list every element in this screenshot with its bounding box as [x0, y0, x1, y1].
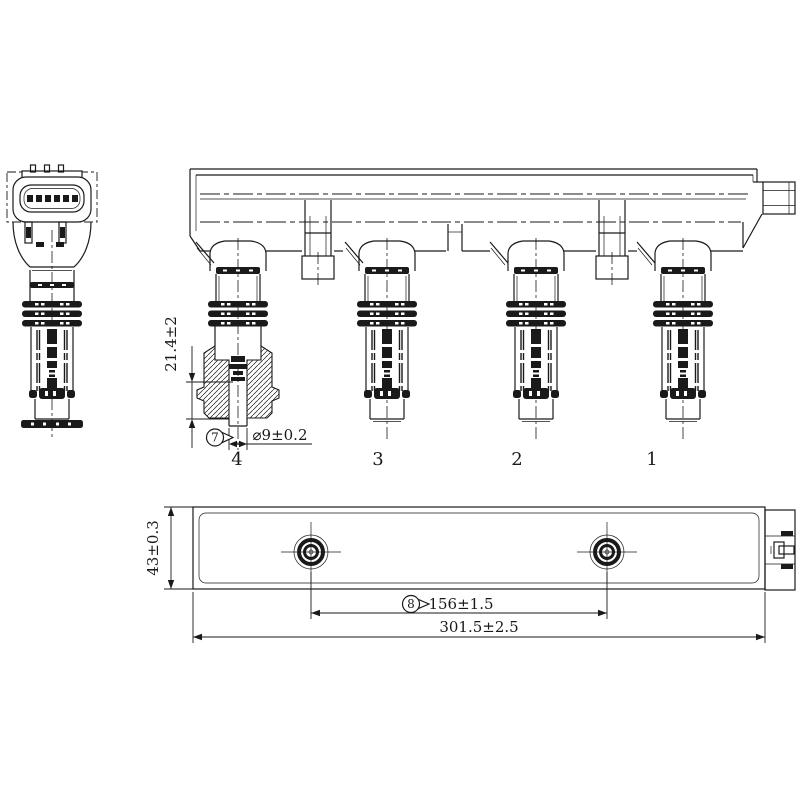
rail-connector-stub [743, 169, 795, 248]
dim-tip-diameter-text: ⌀9±0.2 [253, 426, 308, 444]
coil-number-2: 2 [511, 449, 522, 470]
coil-number-4: 4 [231, 449, 242, 470]
ignition-coil-rail-drawing: 21.4±2 7 ⌀9±0.2 4 3 2 1 [0, 0, 800, 800]
bottom-view-connector [765, 510, 795, 590]
coil-number-1: 1 [646, 449, 657, 470]
balloon-7-number: 7 [211, 431, 219, 445]
coil-tower-3 [357, 238, 417, 441]
coil-tower-1 [653, 238, 713, 441]
mount-boss-right [596, 200, 628, 286]
mount-boss-left [302, 200, 334, 286]
coil-number-3: 3 [372, 449, 383, 470]
dimension-tip-length: 21.4±2 [162, 316, 233, 448]
side-view-coil [7, 165, 97, 440]
dim-hole-spacing-text: 156±1.5 [428, 595, 493, 613]
dim-rail-height-text: 43±0.3 [144, 520, 162, 576]
drawing-canvas: 21.4±2 7 ⌀9±0.2 4 3 2 1 [0, 0, 800, 800]
spark-plug-terminal [229, 356, 247, 381]
coil-tower-4-section [197, 238, 279, 450]
dimension-tip-diameter: 7 ⌀9±0.2 [207, 426, 313, 450]
connector-face [13, 177, 91, 222]
dimension-rail-height: 43±0.3 [144, 507, 196, 589]
mount-boss-center [448, 224, 462, 251]
dimension-hole-spacing: 8 156±1.5 [311, 572, 607, 619]
bottom-view: 43±0.3 8 156±1.5 301.5±2.5 [144, 507, 795, 643]
coil-tower-2 [506, 238, 566, 441]
dim-tip-length-text: 21.4±2 [162, 316, 180, 372]
boot-base-flange [21, 420, 83, 428]
balloon-8-number: 8 [407, 597, 415, 611]
coil-number-labels: 4 3 2 1 [231, 449, 657, 470]
dim-overall-length-text: 301.5±2.5 [439, 618, 518, 636]
